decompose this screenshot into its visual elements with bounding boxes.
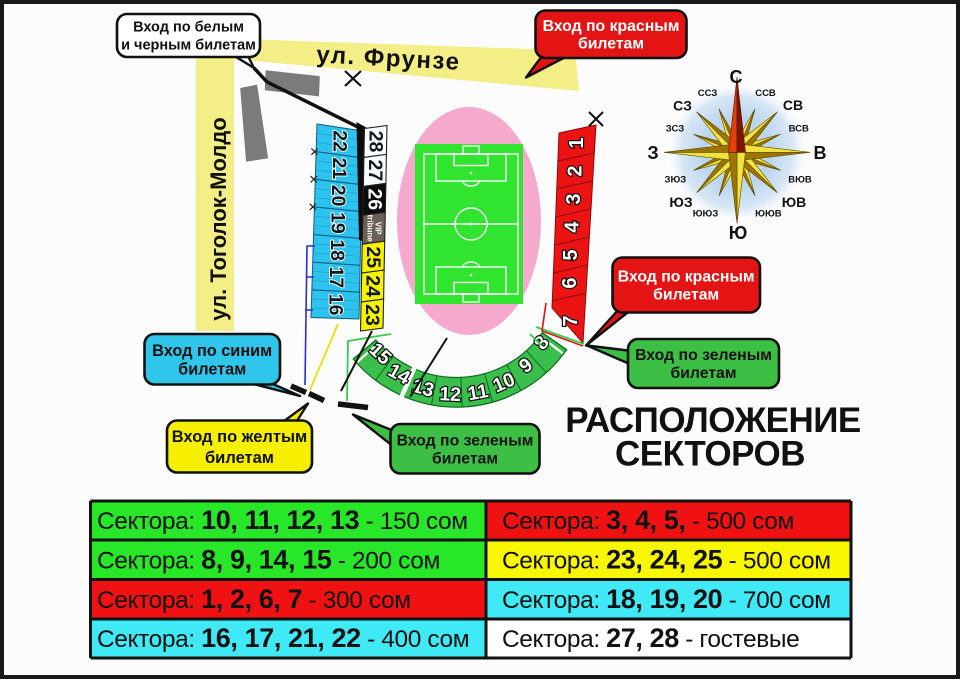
svg-text:25: 25: [362, 246, 384, 268]
svg-text:27: 27: [364, 160, 386, 182]
svg-text:ул. Тоголок-Молдо: ул. Тоголок-Молдо: [206, 117, 231, 320]
svg-text:В: В: [814, 143, 827, 163]
svg-text:23: 23: [361, 304, 383, 326]
svg-text:С: С: [730, 67, 743, 87]
svg-text:17: 17: [325, 267, 347, 289]
svg-text:билетам: билетам: [205, 449, 274, 467]
svg-text:6: 6: [559, 277, 581, 288]
svg-text:18: 18: [326, 239, 348, 261]
svg-text:Вход по зеленым: Вход по зеленым: [397, 432, 534, 449]
svg-text:21: 21: [328, 158, 350, 180]
svg-text:ЮЗ: ЮЗ: [669, 194, 692, 210]
svg-text:ЗСЗ: ЗСЗ: [666, 123, 684, 134]
svg-text:билетам: билетам: [432, 450, 498, 467]
svg-text:5: 5: [560, 249, 582, 260]
svg-text:1: 1: [566, 137, 588, 148]
svg-text:СЗ: СЗ: [673, 98, 692, 114]
svg-text:Вход по белым: Вход по белым: [133, 20, 244, 36]
svg-text:16: 16: [324, 294, 346, 316]
svg-text:11: 11: [466, 380, 490, 405]
svg-text:28: 28: [365, 131, 387, 153]
svg-text:ВСВ: ВСВ: [789, 123, 809, 134]
svg-text:ЗЮЗ: ЗЮЗ: [665, 175, 687, 186]
svg-text:Сектора: 3, 4, 5, - 500 сом: Сектора: 3, 4, 5, - 500 сом: [502, 505, 794, 535]
svg-text:билетам: билетам: [178, 360, 246, 378]
svg-text:Вход по красным: Вход по красным: [618, 269, 755, 286]
svg-text:ЮВ: ЮВ: [782, 194, 807, 210]
svg-text:2: 2: [564, 165, 586, 176]
svg-text:ССВ: ССВ: [755, 88, 776, 99]
svg-text:Сектора: 18, 19, 20 - 700 сом: Сектора: 18, 19, 20 - 700 сом: [502, 584, 831, 614]
svg-text:ЮЮЗ: ЮЮЗ: [693, 209, 719, 220]
svg-text:Сектора: 1, 2, 6, 7 - 300 сом: Сектора: 1, 2, 6, 7 - 300 сом: [97, 584, 411, 614]
svg-text:Ю: Ю: [729, 223, 748, 243]
svg-text:12: 12: [439, 383, 462, 406]
svg-text:26: 26: [363, 188, 385, 210]
svg-text:24: 24: [362, 275, 384, 297]
svg-text:СЕКТОРОВ: СЕКТОРОВ: [615, 435, 805, 474]
svg-text:билетам: билетам: [670, 365, 736, 382]
svg-text:Сектора: 16, 17, 21, 22 - 400: Сектора: 16, 17, 21, 22 - 400 сом: [97, 623, 469, 653]
svg-text:Вход по желтым: Вход по желтым: [172, 428, 308, 446]
svg-text:ССЗ: ССЗ: [698, 88, 718, 99]
svg-text:Сектора: 27, 28 - гостевые: Сектора: 27, 28 - гостевые: [502, 623, 799, 653]
svg-text:Сектора: 8, 9, 14, 15 - 200 со: Сектора: 8, 9, 14, 15 - 200 сом: [97, 544, 440, 574]
svg-text:СВ: СВ: [783, 97, 803, 113]
svg-text:20: 20: [327, 185, 349, 207]
svg-text:ВЮВ: ВЮВ: [788, 175, 812, 186]
svg-text:7: 7: [560, 315, 582, 326]
svg-text:и черным билетам: и черным билетам: [121, 38, 256, 54]
svg-text:19: 19: [327, 212, 349, 234]
svg-text:Сектора: 10, 11, 12, 13 - 150: Сектора: 10, 11, 12, 13 - 150 сом: [97, 505, 468, 535]
svg-text:Вход по зеленым: Вход по зеленым: [635, 347, 772, 364]
svg-text:билетам: билетам: [653, 287, 719, 304]
svg-text:Вход по синим: Вход по синим: [152, 342, 272, 360]
svg-text:4: 4: [562, 221, 584, 233]
svg-text:З: З: [647, 143, 658, 163]
svg-text:22: 22: [329, 130, 351, 152]
svg-text:Вход по красным: Вход по красным: [543, 18, 680, 35]
svg-text:билетам: билетам: [578, 36, 644, 53]
svg-text:3: 3: [563, 193, 585, 204]
svg-text:ЮЮВ: ЮЮВ: [755, 209, 782, 220]
svg-text:Сектора: 23, 24, 25 - 500 сом: Сектора: 23, 24, 25 - 500 сом: [502, 544, 831, 574]
